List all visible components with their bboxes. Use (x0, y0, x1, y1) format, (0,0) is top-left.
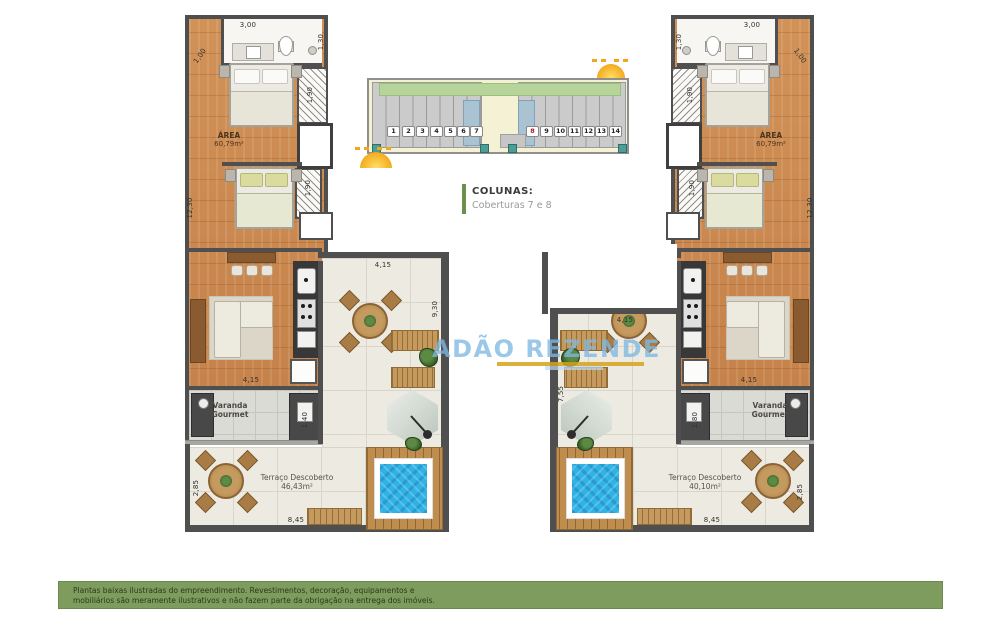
service-shaft (297, 123, 333, 169)
chair (237, 492, 258, 513)
area-value: 60,79m² (745, 140, 797, 149)
stool (741, 265, 753, 276)
glass-railing (677, 440, 814, 445)
shower-head (308, 46, 317, 55)
keyplan-unit-14: 14 (609, 126, 622, 137)
terrace-top-wall (550, 308, 677, 314)
pool (572, 464, 619, 513)
keyplan-unit-11: 11 (568, 126, 581, 137)
varanda-label-left: Varanda Gourmet (194, 401, 266, 419)
dim-living-right: 4,15 (734, 376, 764, 384)
glass-railing (185, 440, 322, 445)
disclaimer-line-1: Plantas baixas ilustradas do empreendime… (73, 586, 928, 596)
pool-frame (374, 458, 433, 519)
pillow (739, 69, 765, 84)
burner (687, 315, 691, 319)
fridge (682, 359, 709, 384)
keyplan-unit-4: 4 (430, 126, 443, 137)
chair (237, 450, 258, 471)
parasol-base (567, 430, 576, 439)
fridge (290, 359, 317, 384)
nightstand (225, 169, 236, 182)
dim-side-left: 12,30 (186, 193, 194, 223)
bench (637, 508, 692, 525)
dim-living-left: 4,15 (236, 376, 266, 384)
building-keyplan: 1 2 3 4 5 6 7 8 9 10 11 12 13 14 (367, 78, 629, 154)
tv-cabinet (793, 299, 809, 363)
dim-descoberto-width-right: 8,45 (697, 516, 727, 524)
varanda-label-right: Varanda Gourmet (734, 401, 806, 419)
deck-plant (405, 437, 422, 451)
watermark-tagline (545, 366, 603, 370)
dim-descoberto-side-left: 2,85 (192, 475, 200, 501)
dim-terrace-side-left: 9,30 (431, 296, 439, 322)
cooktop (297, 299, 316, 328)
pool (380, 464, 427, 513)
keyplan-marker (618, 144, 627, 153)
stool (756, 265, 768, 276)
burner (694, 315, 698, 319)
double-bed-1 (229, 63, 294, 127)
terrace-label-right: Terraço Descoberto 40,10m² (651, 473, 759, 491)
counter-module (683, 331, 702, 348)
shower-head (682, 46, 691, 55)
chair (381, 290, 402, 311)
bathroom-vanity (232, 43, 274, 61)
sink (738, 46, 753, 59)
dim-bath-depth-right: 1,30 (675, 29, 683, 55)
stool (726, 265, 738, 276)
stool (231, 265, 243, 276)
burner (301, 315, 305, 319)
watermark-logo: ADÃO REZENDE (432, 335, 661, 363)
keyplan-unit-13: 13 (595, 126, 608, 137)
dining-counter (723, 252, 772, 263)
dim-terrace-side-right: 7,55 (557, 381, 565, 407)
dim-descoberto-width-left: 8,45 (281, 516, 311, 524)
stool (246, 265, 258, 276)
nightstand (219, 65, 230, 78)
parasol-base (423, 430, 432, 439)
terrace-offset-patch (550, 244, 677, 310)
double-bed-1 (705, 63, 770, 127)
kitchen-sink (683, 268, 702, 294)
bathroom-vanity (725, 43, 767, 61)
area-title: ÁREA (745, 131, 797, 140)
bedroom-divider-wall (222, 162, 302, 166)
sink (246, 46, 261, 59)
keyplan-unit-3: 3 (416, 126, 429, 137)
keyplan-marker (480, 144, 489, 153)
nightstand (763, 169, 774, 182)
table-plant (364, 315, 376, 327)
open-terrace-left-wall (809, 444, 814, 532)
party-wall-stub (542, 252, 548, 314)
burner (694, 304, 698, 308)
area-value: 60,79m² (203, 140, 255, 149)
wardrobe-niche (299, 212, 333, 240)
dim-varanda-right: 1,80 (691, 407, 699, 433)
kitchen-counter (681, 261, 706, 358)
dim-varanda-left: 1,40 (301, 407, 309, 433)
toilet (706, 36, 720, 56)
keyplan-unit7-highlight (463, 100, 480, 146)
dim-closet1-left: 1,90 (306, 82, 314, 108)
stool (261, 265, 273, 276)
legend-accent-bar (462, 184, 466, 214)
disclaimer-footer: Plantas baixas ilustradas do empreendime… (58, 581, 943, 609)
dim-descoberto-side-right: 2,85 (796, 479, 804, 505)
burner (687, 304, 691, 308)
area-title: ÁREA (203, 131, 255, 140)
keyplan-unit-5: 5 (444, 126, 457, 137)
table-plant (220, 475, 232, 487)
bedroom-divider-wall (697, 162, 777, 166)
keyplan-marker (508, 144, 517, 153)
keyplan-garden-strip (379, 83, 621, 96)
terrace-area-value: 46,43m² (243, 482, 351, 491)
dim-bath-depth-left: 1,30 (317, 29, 325, 55)
pillow (736, 173, 759, 187)
drain (691, 278, 695, 282)
table-plant (767, 475, 779, 487)
kitchen-terrace-wall (318, 261, 323, 444)
cooktop (683, 299, 702, 328)
keyplan-unit-7: 7 (470, 126, 483, 137)
dim-bath-width-right: 3,00 (732, 21, 772, 29)
double-bed-2 (235, 167, 294, 229)
pillow (265, 173, 288, 187)
nightstand (291, 65, 302, 78)
pillow (234, 69, 260, 84)
keyplan-unit-6: 6 (457, 126, 470, 137)
sofa-chaise (758, 301, 785, 358)
disclaimer-line-2: mobiliários são meramente ilustrativos e… (73, 596, 928, 606)
chair (339, 332, 360, 353)
blanket (231, 91, 292, 125)
pillow (711, 173, 734, 187)
counter-module (297, 331, 316, 348)
keyplan-unit-10: 10 (554, 126, 567, 137)
terrace-area-value: 40,10m² (651, 482, 759, 491)
burner (301, 304, 305, 308)
nightstand (697, 65, 708, 78)
terrace-title: Terraço Descoberto (243, 473, 351, 482)
sun-lounger (391, 367, 435, 388)
kitchen-counter (293, 261, 318, 358)
area-label-right: ÁREA 60,79m² (745, 131, 797, 149)
dim-side-right: 12,30 (806, 193, 814, 223)
keyplan-unit-8: 8 (526, 126, 539, 137)
terrace-top-wall (318, 252, 449, 258)
dining-counter (227, 252, 276, 263)
dim-closet2-left: 1,90 (304, 175, 312, 201)
pool-frame (566, 458, 625, 519)
blanket (707, 193, 762, 227)
bench (307, 508, 362, 525)
terrace-label-left: Terraço Descoberto 46,43m² (243, 473, 351, 491)
dim-terrace-top-right: 4,15 (610, 316, 640, 324)
blanket (707, 91, 768, 125)
keyplan-unit-1: 1 (387, 126, 400, 137)
sun-lounger (564, 367, 608, 388)
nightstand (769, 65, 780, 78)
keyplan-unit-2: 2 (402, 126, 415, 137)
terrace-title: Terraço Descoberto (651, 473, 759, 482)
double-bed-2 (705, 167, 764, 229)
dim-bath-width-left: 3,00 (228, 21, 268, 29)
burner (308, 304, 312, 308)
burner (308, 315, 312, 319)
dim-terrace-top-left: 4,15 (368, 261, 398, 269)
toilet (279, 36, 293, 56)
open-terrace-left-wall (185, 444, 190, 532)
keyplan-unit-9: 9 (540, 126, 553, 137)
dim-closet2-right: 1,90 (688, 175, 696, 201)
chair (741, 492, 762, 513)
legend-subtitle: Coberturas 7 e 8 (472, 200, 552, 211)
drain (304, 278, 308, 282)
nightstand (697, 169, 708, 182)
keyplan-unit-12: 12 (582, 126, 595, 137)
pillow (240, 173, 263, 187)
sofa-chaise (214, 301, 241, 358)
wardrobe-niche (666, 212, 700, 240)
tv-cabinet (190, 299, 206, 363)
area-label-left: ÁREA 60,79m² (203, 131, 255, 149)
pillow (711, 69, 737, 84)
dim-closet1-right: 1,90 (686, 82, 694, 108)
blanket (237, 193, 292, 227)
legend-title: COLUNAS: (472, 186, 533, 197)
nightstand (291, 169, 302, 182)
pillow (262, 69, 288, 84)
floorplan-sheet: 1 2 3 4 5 6 7 8 9 10 11 12 13 14 COLUNAS… (0, 0, 1000, 644)
kitchen-sink (297, 268, 316, 294)
